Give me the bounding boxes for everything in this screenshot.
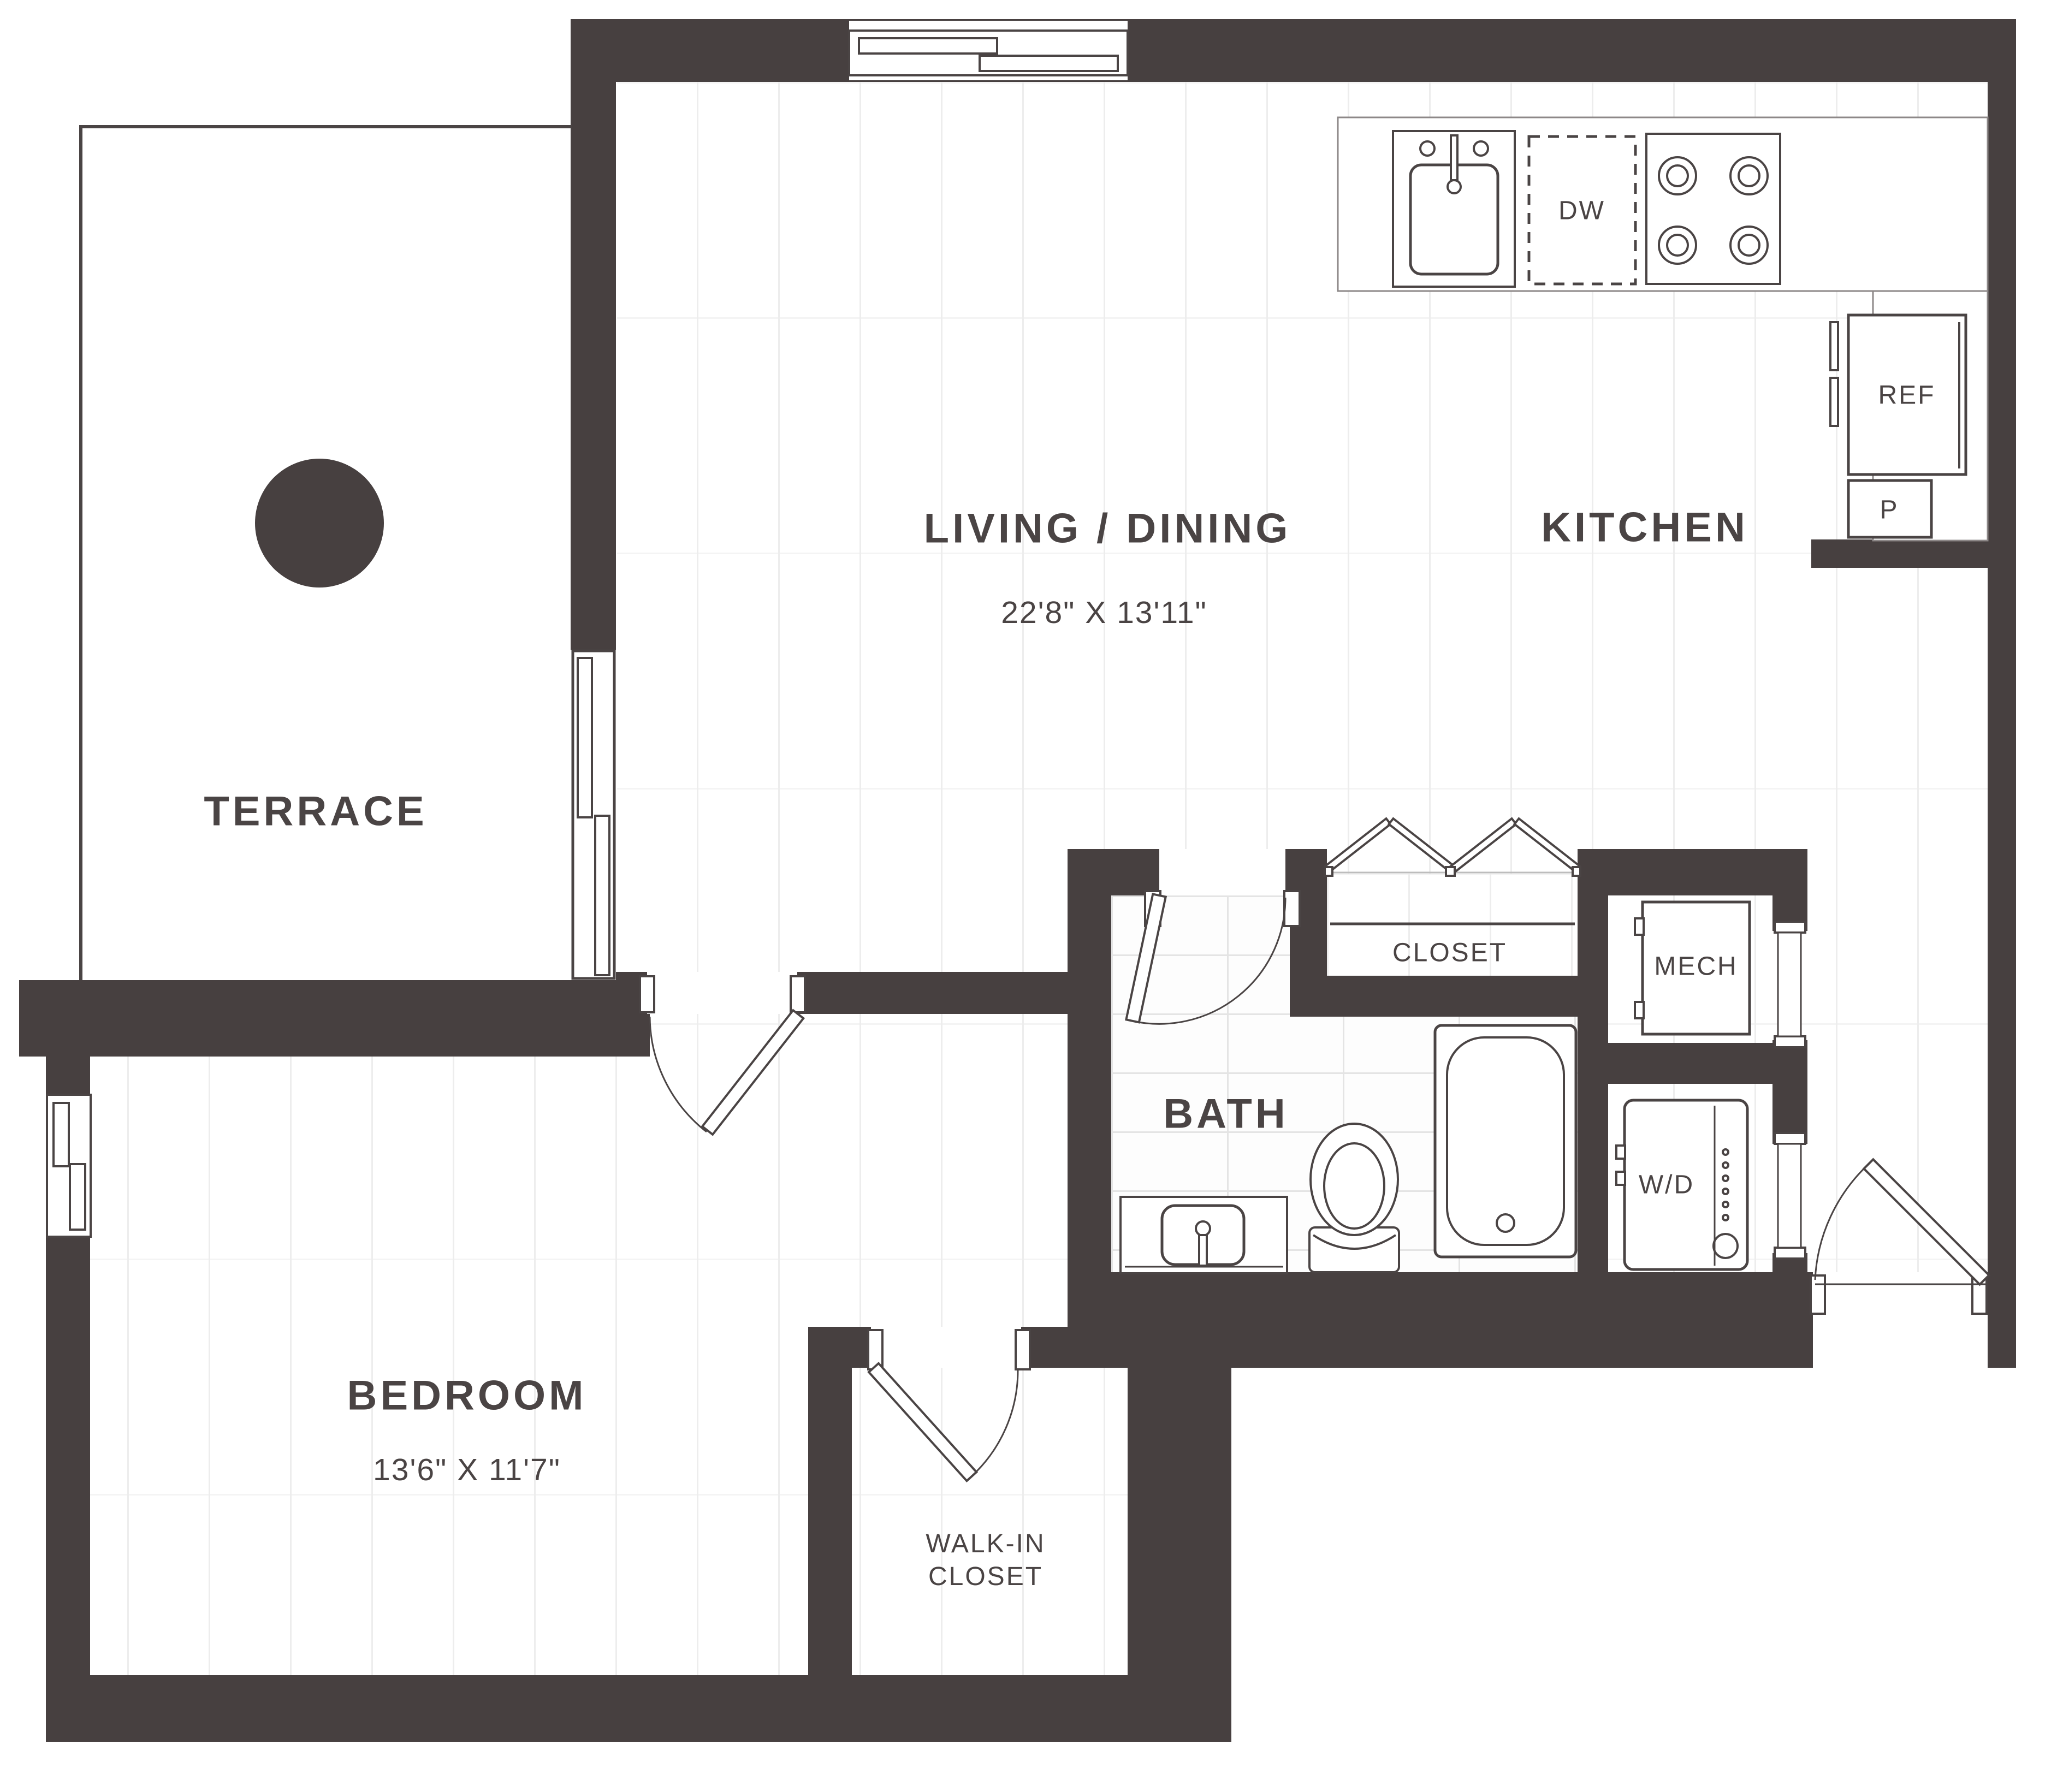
mech-label: MECH bbox=[1654, 952, 1738, 982]
dishwasher-label: DW bbox=[1558, 196, 1605, 226]
door-swing-icon bbox=[1126, 891, 1300, 1024]
vanity-sink-icon bbox=[1121, 1197, 1287, 1273]
bifold-doors-icon bbox=[1325, 818, 1580, 876]
bathtub-icon bbox=[1435, 1025, 1576, 1257]
bath-label: BATH bbox=[1163, 1090, 1288, 1138]
living-dining-label: LIVING / DINING bbox=[924, 505, 1291, 553]
mech-door-icon bbox=[1775, 922, 1805, 1047]
living-dining-dimensions: 22'8" X 13'11" bbox=[1001, 595, 1207, 631]
laundry-door-icon bbox=[1775, 1133, 1805, 1259]
refrigerator-label: REF bbox=[1878, 381, 1936, 411]
pantry-label: P bbox=[1880, 495, 1899, 525]
washer-dryer-label: W/D bbox=[1639, 1170, 1694, 1200]
toilet-icon bbox=[1309, 1124, 1399, 1272]
door-swing-icon bbox=[868, 1330, 1030, 1481]
closet-label: CLOSET bbox=[1392, 938, 1507, 968]
floor-plan: TERRACE LIVING / DINING 22'8" X 13'11" K… bbox=[0, 0, 2063, 1792]
bedroom-label: BEDROOM bbox=[347, 1372, 587, 1420]
window-icon bbox=[849, 31, 1128, 75]
door-swing-icon bbox=[640, 976, 805, 1135]
kitchen-sink-icon bbox=[1393, 131, 1515, 287]
bedroom-dimensions: 13'6" X 11'7" bbox=[373, 1452, 561, 1488]
stove-icon bbox=[1646, 134, 1780, 284]
walk-in-closet-label: WALK-IN CLOSET bbox=[926, 1528, 1045, 1593]
terrace-label: TERRACE bbox=[204, 788, 427, 835]
kitchen-label: KITCHEN bbox=[1541, 504, 1748, 551]
terrace-table-icon bbox=[255, 459, 384, 588]
sliding-door-icon bbox=[573, 651, 614, 978]
door-swing-icon bbox=[1811, 1159, 1989, 1314]
fixtures-layer bbox=[0, 0, 2063, 1792]
window-icon bbox=[47, 1095, 91, 1237]
